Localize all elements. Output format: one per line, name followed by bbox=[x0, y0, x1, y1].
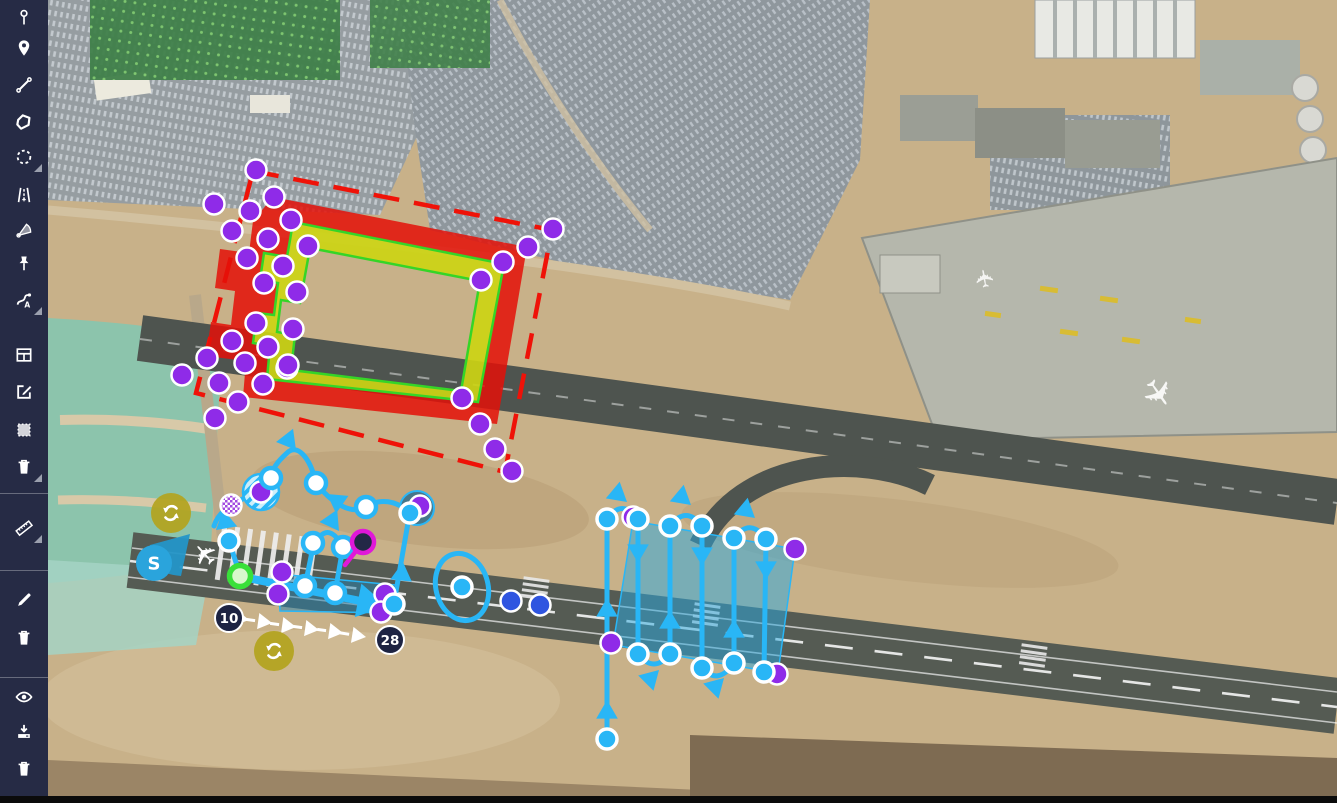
waypoint-active[interactable] bbox=[452, 577, 472, 597]
vertex-handle[interactable] bbox=[471, 270, 492, 291]
dashed-circle-icon bbox=[14, 147, 34, 167]
polygon-icon bbox=[14, 112, 34, 132]
vertex-handle[interactable] bbox=[264, 187, 285, 208]
waypoint[interactable] bbox=[325, 583, 345, 603]
tool-toggle-visibility-button[interactable] bbox=[4, 680, 44, 714]
tool-draw-circle-button[interactable] bbox=[4, 140, 44, 174]
waypoint[interactable] bbox=[261, 468, 281, 488]
tool-add-pin-button[interactable] bbox=[4, 1, 44, 35]
vertex-handle[interactable] bbox=[452, 388, 473, 409]
tool-draw-runway-button[interactable] bbox=[4, 178, 44, 212]
waypoint-active[interactable] bbox=[724, 653, 744, 673]
waypoint-active[interactable] bbox=[597, 509, 617, 529]
waypoint-active[interactable] bbox=[628, 644, 648, 664]
tool-measure-button[interactable] bbox=[4, 511, 44, 545]
waypoint-active[interactable] bbox=[756, 529, 776, 549]
vertex-handle[interactable] bbox=[197, 348, 218, 369]
vertex-handle[interactable] bbox=[287, 282, 308, 303]
vertex-handle[interactable] bbox=[281, 210, 302, 231]
eye-icon bbox=[14, 687, 34, 707]
trash-icon bbox=[14, 628, 34, 648]
waypoint-active[interactable] bbox=[724, 528, 744, 548]
tool-edit-feature-button[interactable] bbox=[4, 375, 44, 409]
route-icon: A bbox=[14, 290, 34, 310]
tool-download-data-button[interactable] bbox=[4, 715, 44, 749]
vertex-handle[interactable] bbox=[172, 365, 193, 386]
blue-point[interactable] bbox=[501, 591, 522, 612]
satellite-imagery: ✈ ✈ bbox=[0, 0, 1337, 803]
tool-clear-all-button[interactable] bbox=[4, 752, 44, 786]
runway-end-label: 10 bbox=[220, 611, 239, 627]
waypoint-active[interactable] bbox=[692, 658, 712, 678]
direction-arrow-dash bbox=[340, 633, 349, 634]
flight-path[interactable] bbox=[764, 539, 766, 672]
vertex-handle[interactable] bbox=[268, 584, 289, 605]
waypoint[interactable] bbox=[356, 497, 376, 517]
pin-stick-icon bbox=[14, 8, 34, 28]
vertex-handle[interactable] bbox=[209, 373, 230, 394]
trash-icon bbox=[14, 759, 34, 779]
direction-arrow-dash bbox=[270, 623, 279, 624]
select-region-icon bbox=[14, 420, 34, 440]
tool-sidebar: A bbox=[0, 0, 48, 803]
vertex-handle[interactable] bbox=[601, 633, 622, 654]
vertex-handle[interactable] bbox=[273, 256, 294, 277]
waypoint-active[interactable] bbox=[660, 516, 680, 536]
refresh-button[interactable] bbox=[151, 493, 191, 533]
vertex-handle[interactable] bbox=[253, 374, 274, 395]
vertex-handle[interactable] bbox=[235, 353, 256, 374]
vertex-handle[interactable] bbox=[283, 319, 304, 340]
pencil-icon bbox=[14, 590, 34, 610]
vertex-handle[interactable] bbox=[470, 414, 491, 435]
vertex-handle[interactable] bbox=[246, 160, 267, 181]
vertex-handle[interactable] bbox=[298, 236, 319, 257]
magenta-pin[interactable] bbox=[352, 531, 374, 553]
map-marker-icon bbox=[14, 38, 34, 58]
tool-open-table-button[interactable] bbox=[4, 338, 44, 372]
vertex-handle[interactable] bbox=[543, 219, 564, 240]
tool-draw-route-button[interactable]: A bbox=[4, 283, 44, 317]
vertex-handle[interactable] bbox=[222, 331, 243, 352]
vertex-handle[interactable] bbox=[246, 313, 267, 334]
direction-arrow-dash bbox=[246, 619, 255, 620]
download-icon bbox=[14, 722, 34, 742]
tool-add-marker-button[interactable] bbox=[4, 31, 44, 65]
waypoint-active[interactable] bbox=[384, 594, 404, 614]
tool-delete-sketch-button[interactable] bbox=[4, 621, 44, 655]
vertex-handle[interactable] bbox=[258, 229, 279, 250]
refresh-button[interactable] bbox=[254, 631, 294, 671]
waypoint-active[interactable] bbox=[628, 509, 648, 529]
application-window: ✈ ✈ 1028S✈ A bbox=[0, 0, 1337, 803]
vertex-handle[interactable] bbox=[493, 252, 514, 273]
trash-icon bbox=[14, 457, 34, 477]
vertex-handle[interactable] bbox=[258, 337, 279, 358]
sidebar-divider bbox=[0, 493, 48, 494]
vertex-handle[interactable] bbox=[205, 408, 226, 429]
tool-delete-feature-button[interactable] bbox=[4, 450, 44, 484]
sidebar-divider bbox=[0, 570, 48, 571]
vertex-handle[interactable] bbox=[272, 562, 293, 583]
waypoint[interactable] bbox=[303, 533, 323, 553]
waypoint-active[interactable] bbox=[597, 729, 617, 749]
vertex-handle[interactable] bbox=[485, 439, 506, 460]
vertex-handle[interactable] bbox=[502, 461, 523, 482]
waypoint-active[interactable] bbox=[400, 503, 420, 523]
satellite-map-canvas[interactable]: ✈ ✈ 1028S✈ bbox=[0, 0, 1337, 803]
edit-square-icon bbox=[14, 382, 34, 402]
vertex-handle[interactable] bbox=[228, 392, 249, 413]
tool-select-region-button[interactable] bbox=[4, 413, 44, 447]
waypoint[interactable] bbox=[295, 576, 315, 596]
sector-icon bbox=[14, 220, 34, 240]
tool-draw-line-button[interactable] bbox=[4, 68, 44, 102]
waypoint-active[interactable] bbox=[660, 644, 680, 664]
direction-arrow-dash bbox=[293, 626, 302, 627]
pushpin-icon bbox=[14, 254, 34, 274]
sidebar-divider bbox=[0, 677, 48, 678]
vertex-handle[interactable] bbox=[204, 194, 225, 215]
takeoff-point[interactable] bbox=[230, 566, 251, 587]
waypoint-active[interactable] bbox=[692, 516, 712, 536]
vertex-handle[interactable] bbox=[278, 355, 299, 376]
tool-draw-sector-button[interactable] bbox=[4, 213, 44, 247]
vertex-handle[interactable] bbox=[518, 237, 539, 258]
table-icon bbox=[14, 345, 34, 365]
ruler-icon bbox=[14, 518, 34, 538]
blue-point[interactable] bbox=[530, 595, 551, 616]
vertex-handle[interactable] bbox=[240, 201, 261, 222]
tool-draw-sketch-button[interactable] bbox=[4, 583, 44, 617]
tool-add-pushpin-button[interactable] bbox=[4, 247, 44, 281]
waypoint-active[interactable] bbox=[754, 662, 774, 682]
checkered-helipad-circle[interactable] bbox=[221, 495, 242, 516]
vertex-handle[interactable] bbox=[785, 539, 806, 560]
start-marker-label: S bbox=[148, 554, 161, 575]
runway-end-label: 28 bbox=[381, 633, 400, 649]
vertex-handle[interactable] bbox=[237, 248, 258, 269]
map-render-surface: ✈ ✈ 1028S✈ bbox=[0, 0, 1337, 803]
polyline-icon bbox=[14, 75, 34, 95]
direction-arrow-dash bbox=[317, 629, 326, 630]
vertex-handle[interactable] bbox=[222, 221, 243, 242]
waypoint[interactable] bbox=[306, 473, 326, 493]
runway-icon bbox=[14, 185, 34, 205]
map-edge-strip bbox=[0, 796, 1337, 803]
vertex-handle[interactable] bbox=[254, 273, 275, 294]
svg-text:A: A bbox=[24, 301, 30, 310]
tool-draw-polygon-button[interactable] bbox=[4, 105, 44, 139]
